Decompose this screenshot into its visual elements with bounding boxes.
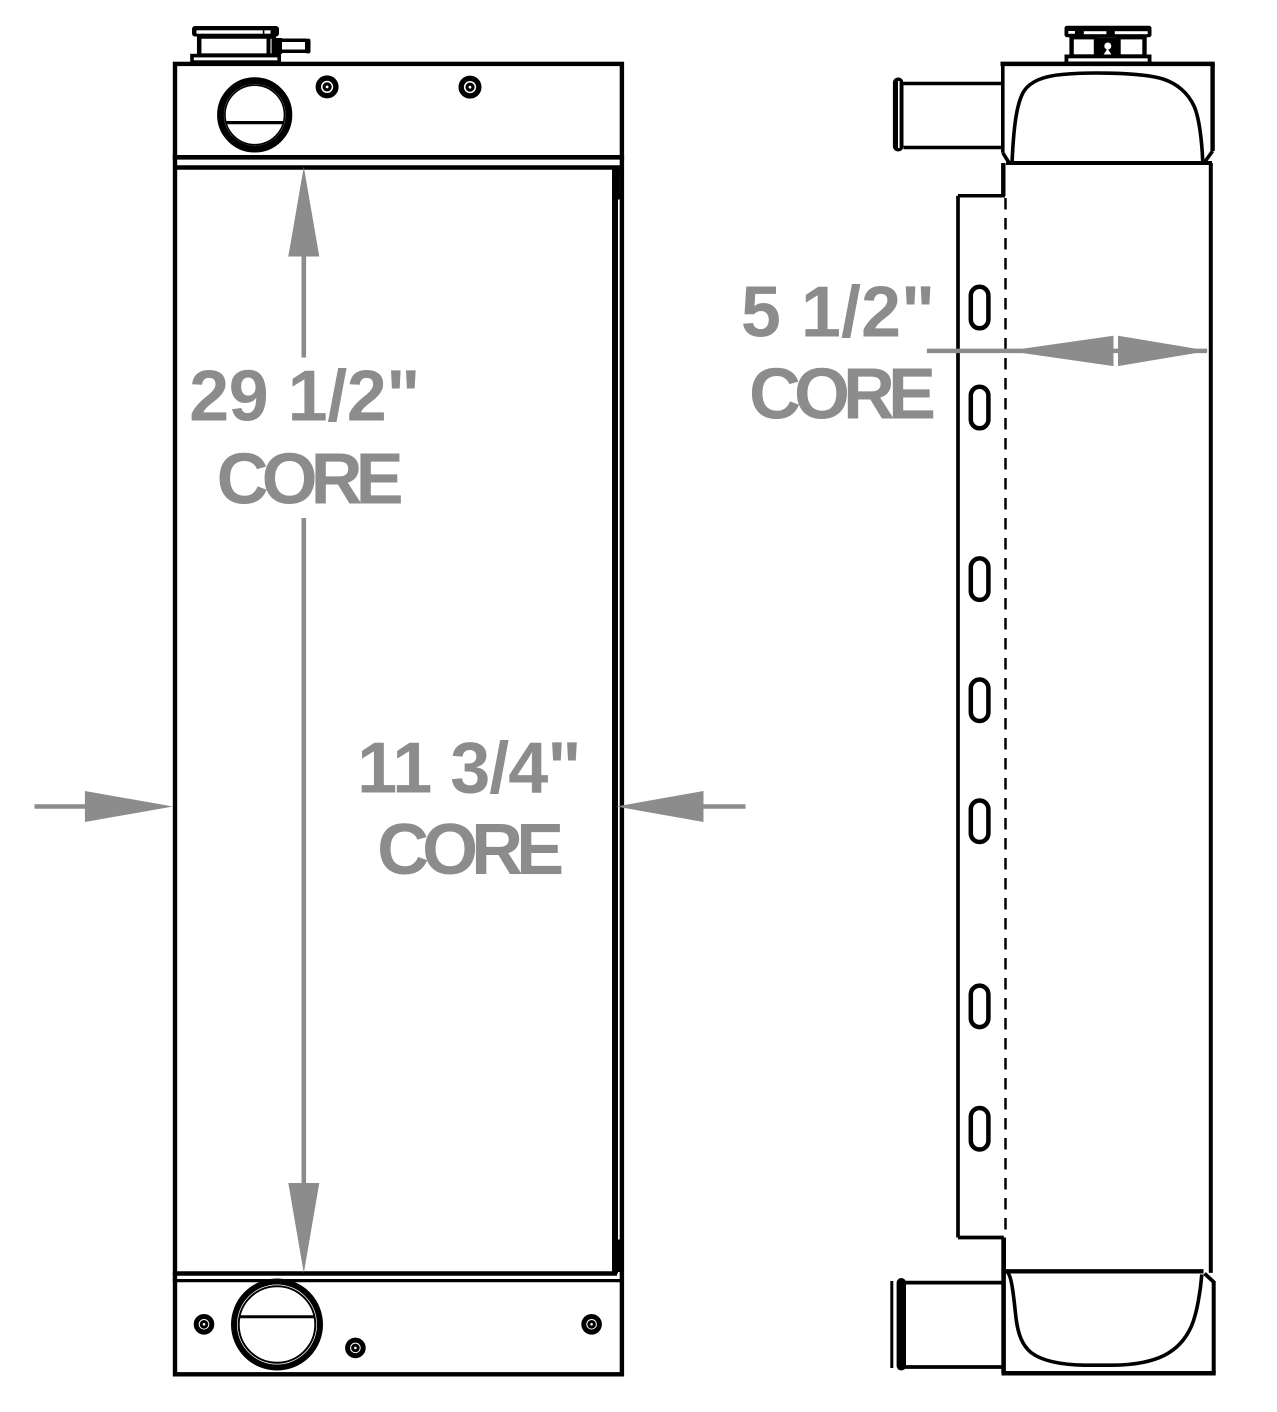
svg-text:5 1/2": 5 1/2" xyxy=(741,273,935,353)
svg-text:29 1/2": 29 1/2" xyxy=(189,357,420,437)
svg-text:11 3/4": 11 3/4" xyxy=(357,729,580,809)
svg-text:CORE: CORE xyxy=(217,440,402,520)
svg-text:CORE: CORE xyxy=(749,354,934,434)
svg-text:CORE: CORE xyxy=(377,810,562,890)
